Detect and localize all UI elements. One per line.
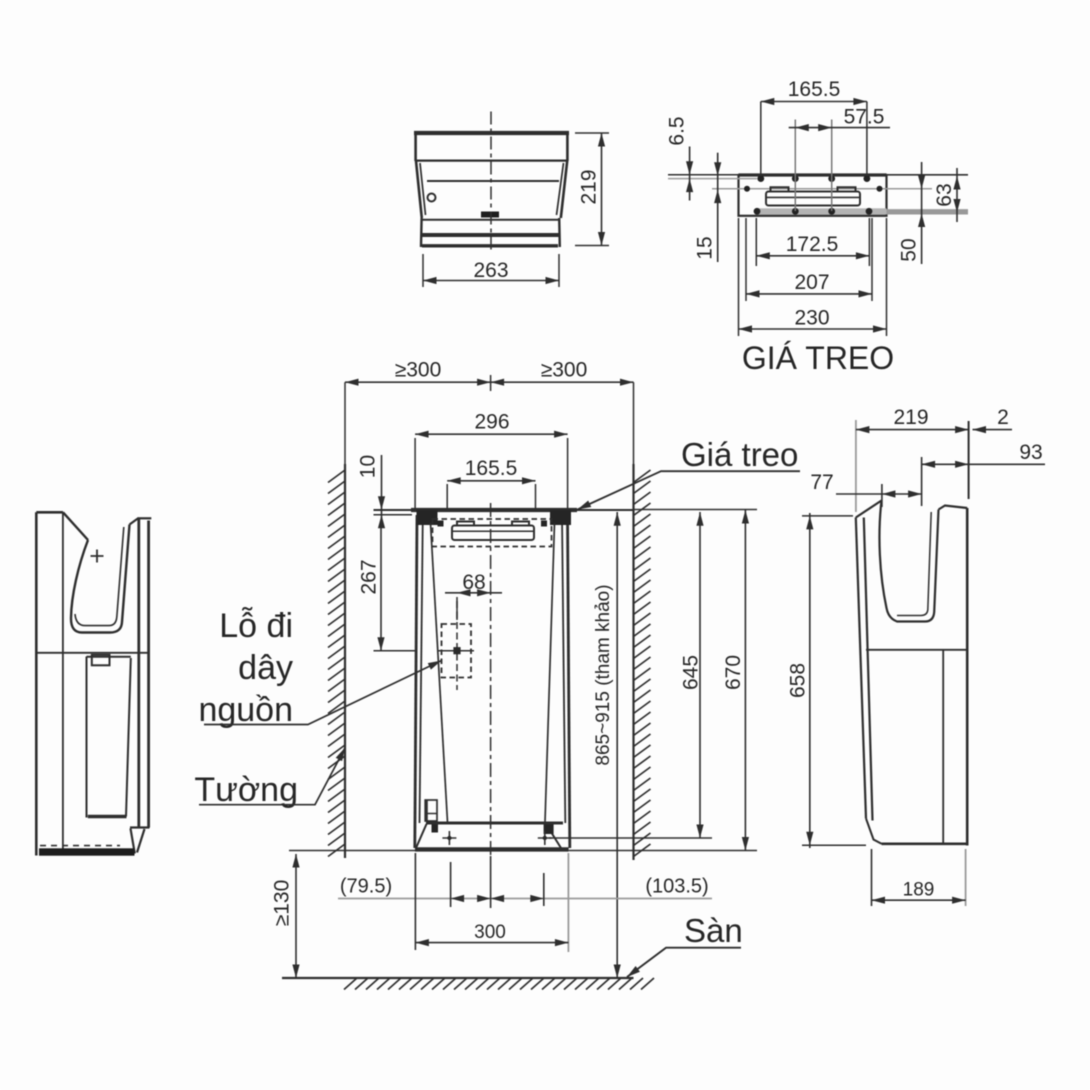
svg-text:296: 296 (474, 411, 509, 434)
svg-text:15: 15 (694, 236, 717, 259)
svg-text:dây: dây (238, 649, 293, 687)
svg-text:77: 77 (810, 471, 833, 494)
svg-text:Tường: Tường (194, 771, 298, 809)
svg-text:230: 230 (794, 307, 829, 330)
svg-text:(103.5): (103.5) (645, 876, 708, 898)
svg-text:658: 658 (787, 663, 810, 698)
svg-text:Giá treo: Giá treo (681, 436, 798, 473)
svg-text:172.5: 172.5 (786, 233, 839, 256)
svg-text:50: 50 (898, 238, 921, 261)
svg-text:300: 300 (474, 922, 506, 943)
svg-text:219: 219 (578, 169, 601, 204)
svg-text:nguồn: nguồn (198, 691, 293, 729)
svg-text:645: 645 (680, 655, 703, 690)
svg-text:10: 10 (357, 455, 380, 478)
svg-text:Lỗ đi: Lỗ đi (219, 607, 293, 645)
svg-text:2: 2 (997, 406, 1009, 429)
svg-text:63: 63 (933, 183, 956, 206)
svg-text:(79.5): (79.5) (340, 876, 392, 898)
svg-text:≥300: ≥300 (395, 359, 442, 382)
svg-text:207: 207 (794, 271, 829, 294)
svg-text:≥300: ≥300 (541, 359, 588, 382)
svg-text:865~915 (tham khảo): 865~915 (tham khảo) (593, 584, 614, 765)
svg-text:670: 670 (722, 655, 745, 690)
svg-text:267: 267 (358, 559, 381, 594)
svg-text:189: 189 (903, 880, 935, 901)
svg-text:Sàn: Sàn (684, 912, 743, 949)
svg-text:GIÁ TREO: GIÁ TREO (742, 340, 894, 376)
svg-text:6.5: 6.5 (666, 116, 689, 145)
svg-text:≥130: ≥130 (271, 880, 294, 927)
svg-text:165.5: 165.5 (788, 78, 841, 101)
svg-text:263: 263 (473, 259, 508, 282)
svg-text:57.5: 57.5 (844, 106, 885, 129)
svg-text:165.5: 165.5 (465, 457, 518, 480)
svg-text:68: 68 (462, 571, 485, 594)
svg-text:219: 219 (893, 406, 928, 429)
svg-text:93: 93 (1019, 441, 1042, 464)
